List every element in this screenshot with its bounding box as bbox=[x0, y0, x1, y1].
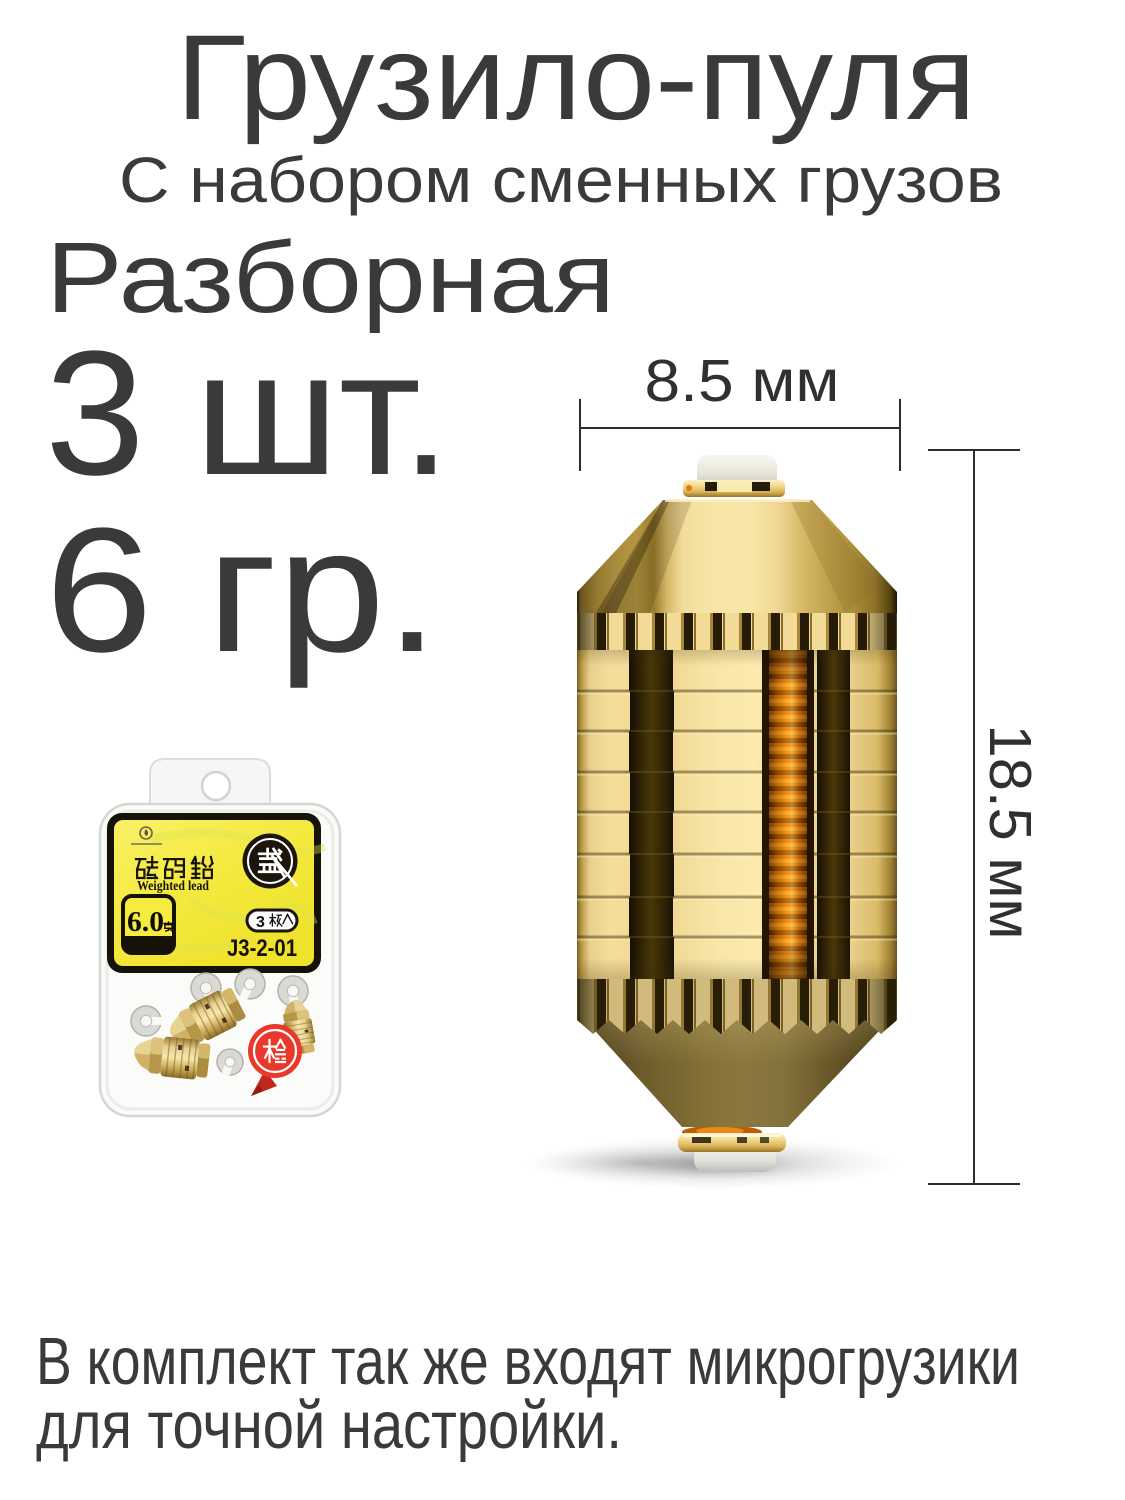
svg-text:Грузило-пуля: Грузило-пуля bbox=[176, 9, 976, 145]
svg-text:3: 3 bbox=[256, 914, 265, 931]
svg-text:6.0: 6.0 bbox=[127, 907, 164, 938]
svg-text:3 шт.: 3 шт. bbox=[45, 314, 451, 512]
svg-text:для точной настройки.: для точной настройки. bbox=[36, 1388, 622, 1463]
svg-text:18.5 мм: 18.5 мм bbox=[977, 725, 1043, 940]
svg-text:Weighted lead: Weighted lead bbox=[137, 878, 209, 893]
svg-text:8.5 мм: 8.5 мм bbox=[645, 348, 840, 414]
svg-text:6 гр.: 6 гр. bbox=[45, 491, 439, 689]
svg-text:J3-2-01: J3-2-01 bbox=[227, 935, 297, 962]
svg-text:С набором сменных грузов: С набором сменных грузов bbox=[119, 144, 1003, 216]
